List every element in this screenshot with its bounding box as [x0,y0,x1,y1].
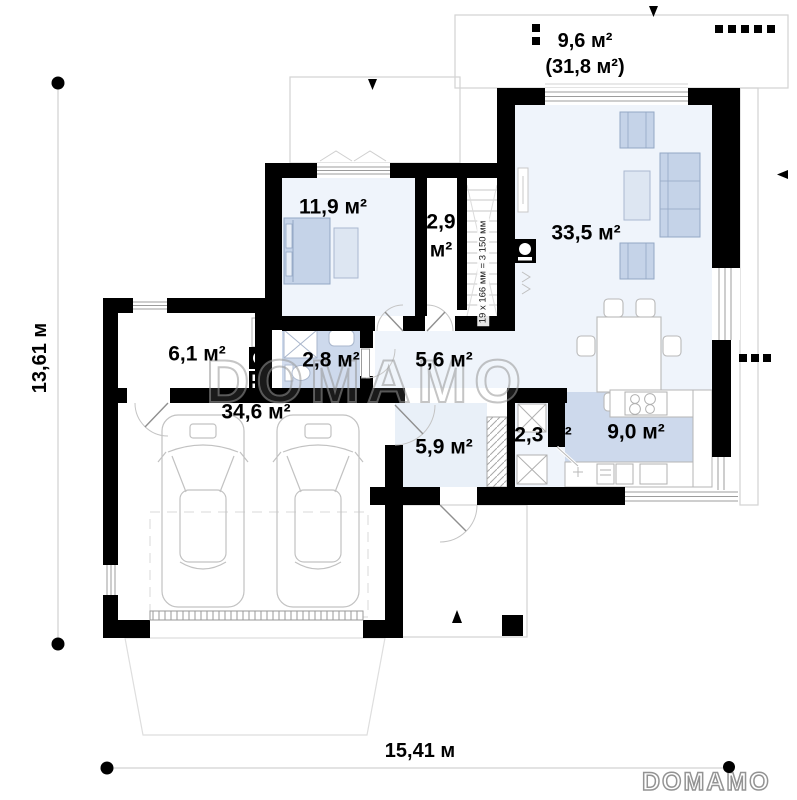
car-right [273,415,363,607]
kitchen-sink-icon [597,464,667,484]
garage-door [150,611,363,620]
floor-plan-page: DOMAMO 9,6 м² (31,8 м²) 11,9 м² 2,9 м² 3… [0,0,797,800]
window-sash-marks [320,151,386,161]
coat-closet [487,417,507,487]
floor-plan-drawing [0,0,797,800]
bedroom-area-label: 11,9 м² [299,197,367,218]
bedroom-dresser [334,228,358,278]
terrace-total-area-label: (31,8 м²) [545,57,624,77]
dimension-line-bottom [101,762,734,775]
kitchen-area-label: 9,0 м² [607,422,665,443]
vestibule-area-label: 5,9 м² [415,437,473,458]
stove-icon [625,392,667,415]
dimension-line-left [52,77,65,651]
utility-area-label: 6,1 м² [168,344,226,365]
hall-area-label: 5,6 м² [415,350,473,371]
garage-area-label: 34,6 м² [221,402,290,423]
terrace-area-label: 9,6 м² [558,31,613,51]
stairs-note: 19 x 166 мм = 3 150 мм [477,218,489,326]
bed [284,218,330,284]
storage-area-label: 2,3 м² [514,425,572,446]
closet-area-unit: м² [430,240,453,261]
closet-area-value: 2,9 [426,212,455,233]
width-dimension-label: 15,41 м [385,741,455,761]
brand-logo-dot [723,761,735,773]
bathroom-area-label: 2,8 м² [302,350,360,371]
brand-logo: DOMAMO [642,770,771,795]
height-dimension-label: 13,61 м [30,323,50,393]
living-area-label: 33,5 м² [551,223,620,244]
car-left [158,415,248,607]
